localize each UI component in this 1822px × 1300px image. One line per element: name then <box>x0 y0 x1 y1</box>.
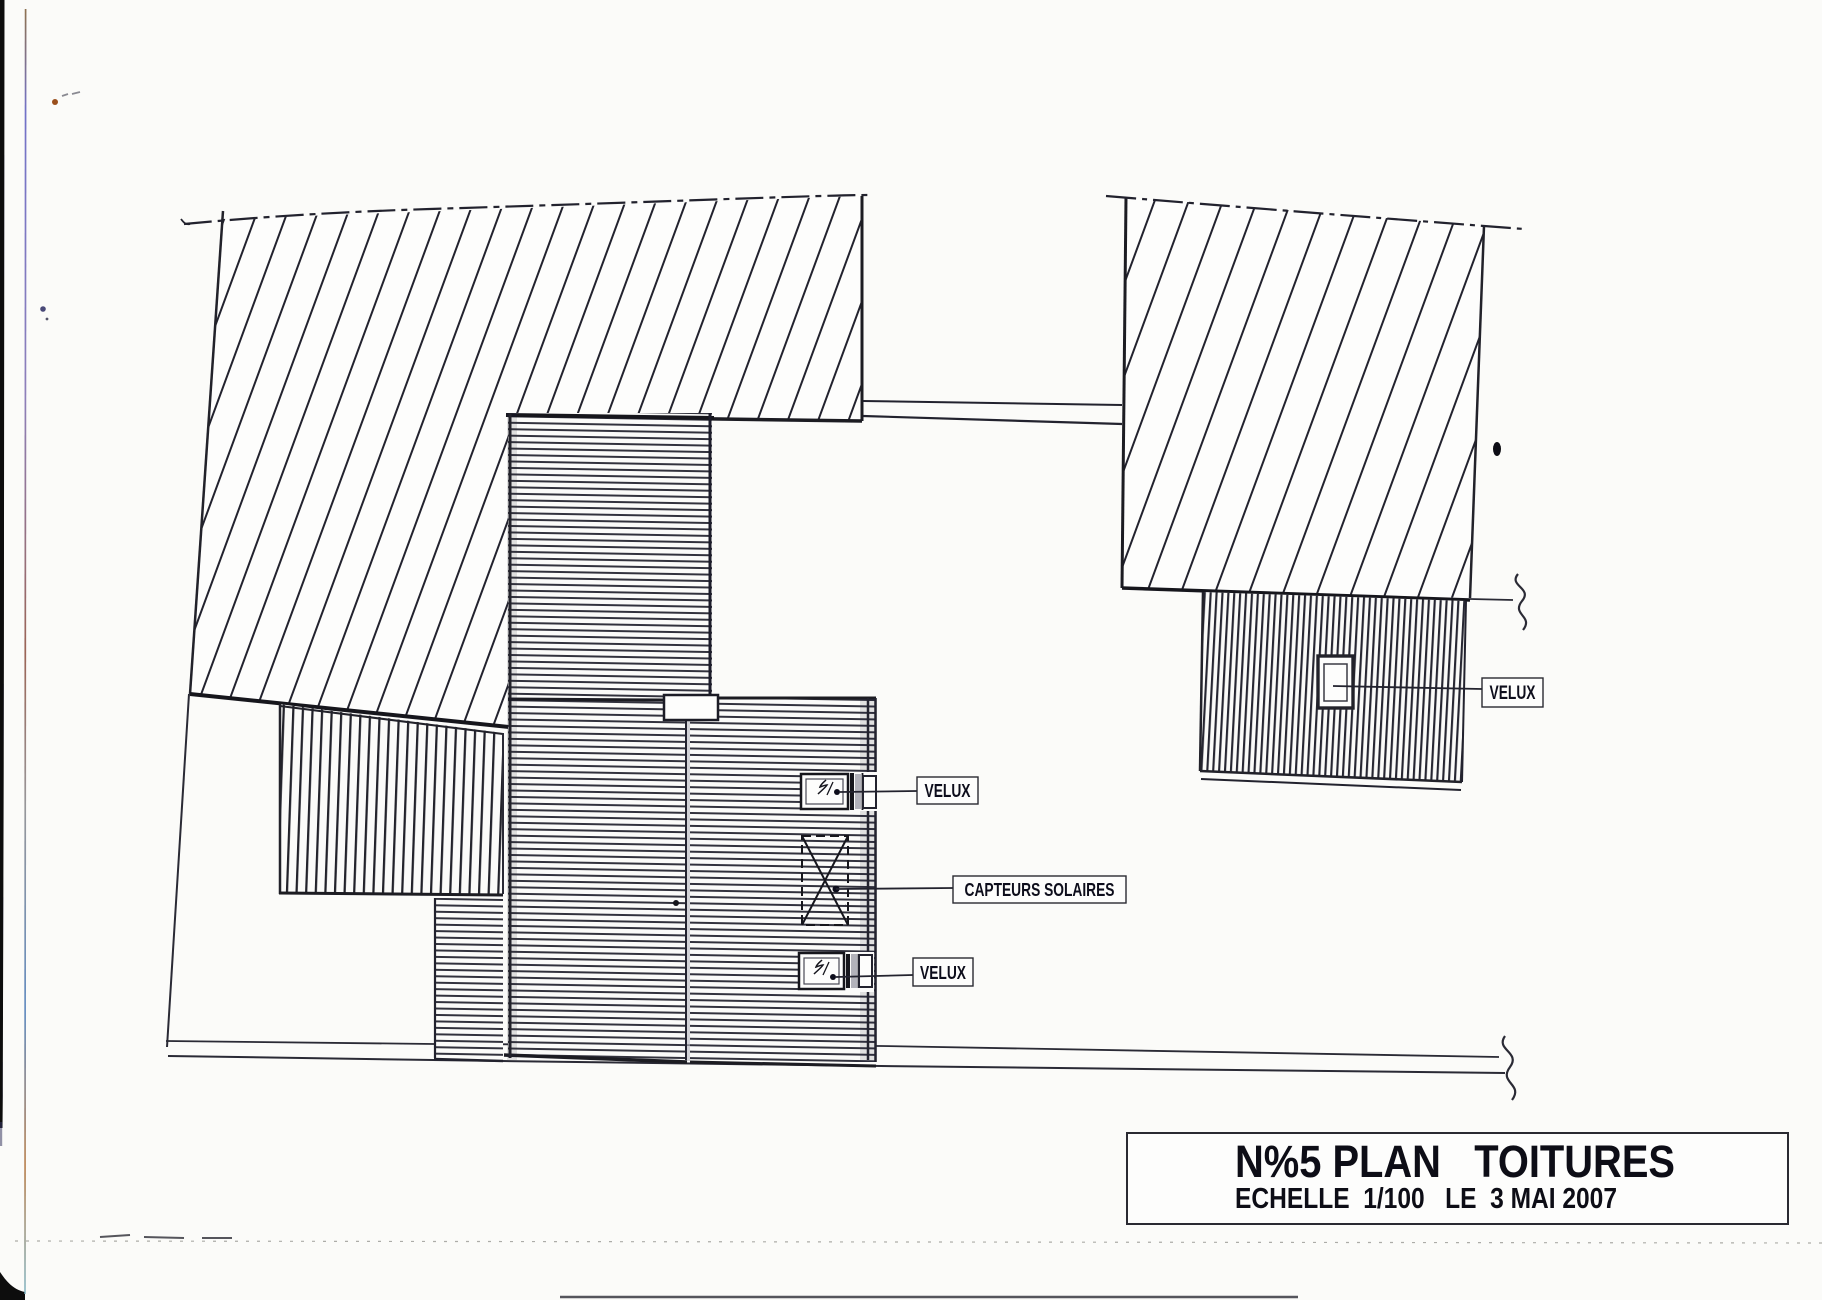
svg-text:VELUX: VELUX <box>920 963 966 983</box>
svg-text:VELUX: VELUX <box>1490 683 1536 704</box>
svg-text:CAPTEURS SOLAIRES: CAPTEURS SOLAIRES <box>965 880 1115 900</box>
svg-text:N%5 PLAN TOITURES: N%5 PLAN TOITURES <box>1235 1136 1675 1187</box>
svg-text:VELUX: VELUX <box>925 781 971 801</box>
svg-text:ECHELLE 1/100 LE 3 MAI 200: ECHELLE 1/100 LE 3 MAI 2007 <box>1235 1183 1617 1215</box>
